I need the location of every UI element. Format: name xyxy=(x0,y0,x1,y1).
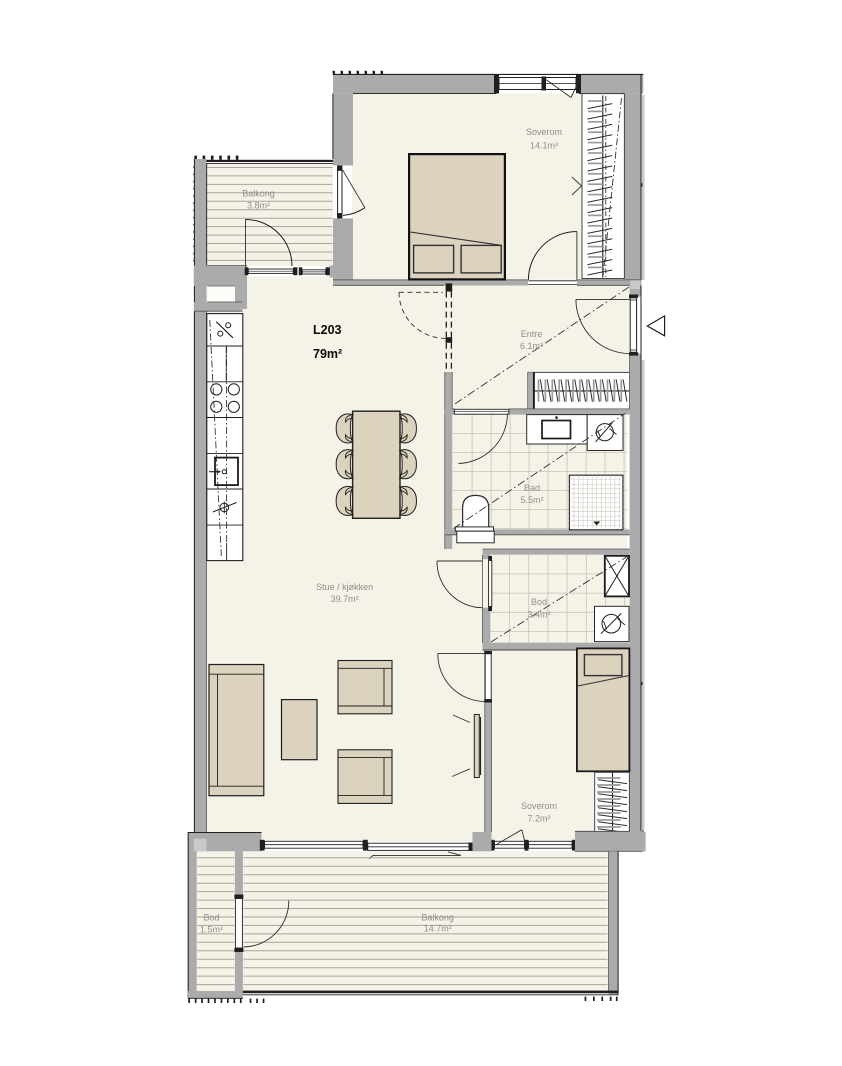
svg-text:L203: L203 xyxy=(313,323,342,337)
svg-text:1.5m²: 1.5m² xyxy=(200,925,223,935)
svg-text:3.4m²: 3.4m² xyxy=(527,610,550,620)
svg-text:Balkong: Balkong xyxy=(421,913,454,923)
svg-text:6.1m²: 6.1m² xyxy=(520,341,543,351)
svg-text:Balkong: Balkong xyxy=(242,189,275,199)
svg-text:Bad: Bad xyxy=(524,483,540,493)
svg-text:Soverom: Soverom xyxy=(526,127,562,137)
svg-text:5.5m²: 5.5m² xyxy=(520,495,543,505)
svg-text:7.2m²: 7.2m² xyxy=(527,814,550,824)
svg-text:Stue / kjøkken: Stue / kjøkken xyxy=(316,582,373,592)
svg-text:79m²: 79m² xyxy=(313,347,342,361)
svg-text:39.7m²: 39.7m² xyxy=(331,594,359,604)
svg-text:3.8m²: 3.8m² xyxy=(247,201,270,211)
svg-text:Entre: Entre xyxy=(521,329,543,339)
svg-text:Bod: Bod xyxy=(531,597,547,607)
svg-text:14.1m²: 14.1m² xyxy=(530,141,558,151)
svg-text:Soverom: Soverom xyxy=(521,801,557,811)
svg-text:14.7m²: 14.7m² xyxy=(424,924,452,934)
svg-text:Bod: Bod xyxy=(203,913,219,923)
